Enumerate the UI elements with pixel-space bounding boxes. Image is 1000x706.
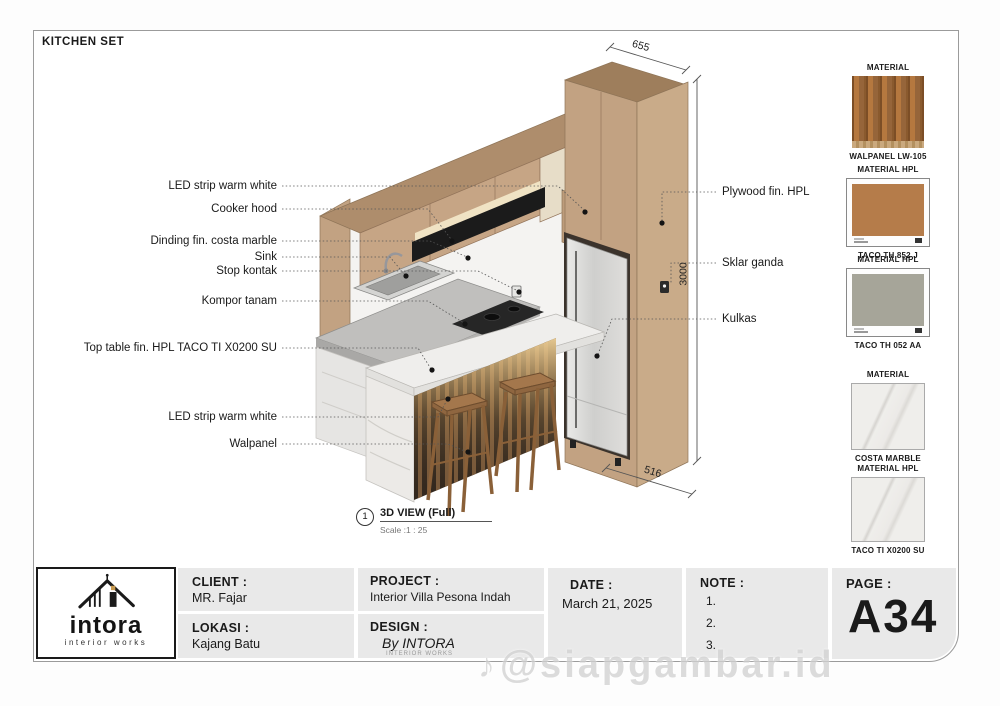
music-note-icon: ♪ <box>478 647 498 685</box>
logo-tagline: interior works <box>38 638 174 647</box>
island-waterfall-panel <box>366 376 414 502</box>
label-led-strip-upper: LED strip warm white <box>168 179 277 193</box>
material-card-taco-x0200: MATERIAL HPL TACO TI X0200 SU <box>846 464 930 555</box>
label-led-strip-island: LED strip warm white <box>168 410 277 424</box>
material-header: MATERIAL <box>846 63 930 72</box>
marble-swatch <box>851 477 925 542</box>
view-title: 3D VIEW (Full) <box>380 507 492 522</box>
label-kompor-tanam: Kompor tanam <box>202 294 277 308</box>
client-cell: CLIENT : MR. Fajar <box>178 568 354 611</box>
watermark-text: @siapgambar.id <box>500 644 835 686</box>
page-label: PAGE : <box>846 576 956 591</box>
label-cooker-hood: Cooker hood <box>211 202 277 216</box>
client-value: MR. Fajar <box>192 591 354 605</box>
material-label: TACO TI X0200 SU <box>846 546 930 555</box>
material-card-taco-052aa: MATERIAL HPL TACO TH 052 AA <box>846 255 930 350</box>
label-top-table: Top table fin. HPL TACO TI X0200 SU <box>84 341 277 355</box>
label-dinding-costa-marble: Dinding fin. costa marble <box>150 234 277 248</box>
logo-cell: intora interior works <box>36 567 176 659</box>
label-kulkas: Kulkas <box>722 312 757 326</box>
material-card-taco-852j: MATERIAL HPL TACO TH 852 J <box>846 165 930 260</box>
drawing-sheet: { "sheet": { "title": "KITCHEN SET", "vi… <box>0 0 1000 706</box>
lokasi-cell: LOKASI : Kajang Batu <box>178 614 354 658</box>
label-stop-kontak: Stop kontak <box>216 264 277 278</box>
page-number: A34 <box>848 593 956 639</box>
logo-wordmark: intora <box>38 616 174 636</box>
material-header: MATERIAL HPL <box>846 464 930 473</box>
label-sklar-ganda: Sklar ganda <box>722 256 783 270</box>
note-item: 1. <box>706 594 828 608</box>
material-card-walpanel: MATERIAL WALPANEL LW-105 <box>846 63 930 161</box>
label-sink: Sink <box>255 250 277 264</box>
project-cell: PROJECT : Interior Villa Pesona Indah <box>358 568 544 611</box>
watermark: ♪@siapgambar.id <box>478 644 835 687</box>
material-header: MATERIAL <box>846 370 930 379</box>
lokasi-label: LOKASI : <box>192 621 354 635</box>
intora-logo-icon <box>75 573 137 611</box>
date-label: DATE : <box>570 578 682 592</box>
view-scale: Scale :1 : 25 <box>380 525 427 535</box>
note-item: 2. <box>706 616 828 630</box>
marble-swatch <box>851 383 925 450</box>
label-walpanel: Walpanel <box>229 437 277 451</box>
material-label: TACO TH 052 AA <box>846 341 930 350</box>
project-label: PROJECT : <box>370 574 544 588</box>
tan-hpl-swatch <box>846 178 930 247</box>
material-label: COSTA MARBLE <box>846 454 930 463</box>
gray-hpl-swatch <box>846 268 930 337</box>
project-value: Interior Villa Pesona Indah <box>370 590 544 604</box>
dim-3000: 3000 <box>678 262 690 285</box>
label-plywood: Plywood fin. HPL <box>722 185 810 199</box>
material-header: MATERIAL HPL <box>846 165 930 174</box>
material-label: WALPANEL LW-105 <box>846 152 930 161</box>
material-card-costa-marble: MATERIAL COSTA MARBLE <box>846 370 930 463</box>
walpanel-swatch <box>852 76 924 148</box>
date-value: March 21, 2025 <box>562 596 682 611</box>
client-label: CLIENT : <box>192 575 354 589</box>
material-header: MATERIAL HPL <box>846 255 930 264</box>
view-number-badge: 1 <box>356 508 374 526</box>
design-label: DESIGN : <box>370 620 544 634</box>
lokasi-value: Kajang Batu <box>192 637 354 651</box>
note-label: NOTE : <box>700 576 828 590</box>
page-cell: PAGE : A34 <box>832 568 956 659</box>
